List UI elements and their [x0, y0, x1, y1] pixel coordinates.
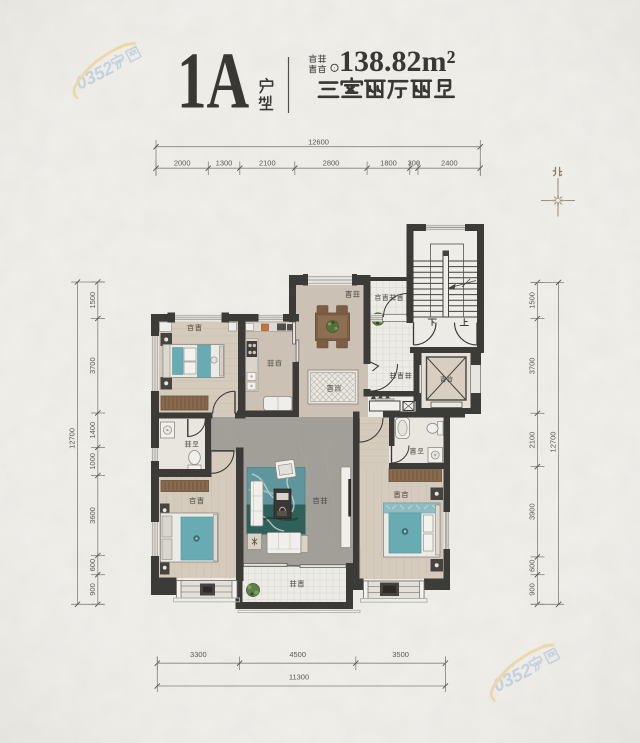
svg-text:2400: 2400	[441, 159, 458, 168]
svg-text:2100: 2100	[259, 159, 276, 168]
svg-text:1300: 1300	[216, 159, 233, 168]
svg-text:2100: 2100	[527, 432, 536, 449]
svg-text:12700: 12700	[549, 432, 558, 453]
svg-text:3700: 3700	[88, 357, 97, 374]
svg-text:900: 900	[527, 583, 536, 596]
svg-text:1800: 1800	[380, 159, 397, 168]
svg-text:3300: 3300	[190, 650, 207, 659]
svg-text:1A: 1A	[177, 37, 249, 126]
svg-text:600: 600	[527, 560, 536, 573]
svg-text::: :	[334, 65, 336, 72]
svg-text:12600: 12600	[308, 137, 329, 146]
svg-text:2800: 2800	[323, 159, 340, 168]
svg-text:3600: 3600	[88, 507, 97, 524]
svg-text:138.82m²: 138.82m²	[339, 45, 455, 78]
svg-text:3900: 3900	[527, 503, 536, 520]
svg-text:1000: 1000	[88, 453, 97, 470]
svg-text:1400: 1400	[88, 422, 97, 439]
svg-text:300: 300	[408, 159, 421, 168]
svg-text:2000: 2000	[174, 159, 191, 168]
svg-text:1500: 1500	[527, 292, 536, 309]
svg-text:12700: 12700	[68, 428, 77, 449]
svg-text:900: 900	[88, 583, 97, 596]
svg-text:11300: 11300	[289, 673, 309, 682]
svg-text:1500: 1500	[88, 292, 97, 309]
svg-text:600: 600	[88, 559, 97, 572]
svg-text:4500: 4500	[289, 650, 306, 659]
svg-text:3700: 3700	[527, 358, 536, 375]
svg-text:3500: 3500	[392, 650, 409, 659]
